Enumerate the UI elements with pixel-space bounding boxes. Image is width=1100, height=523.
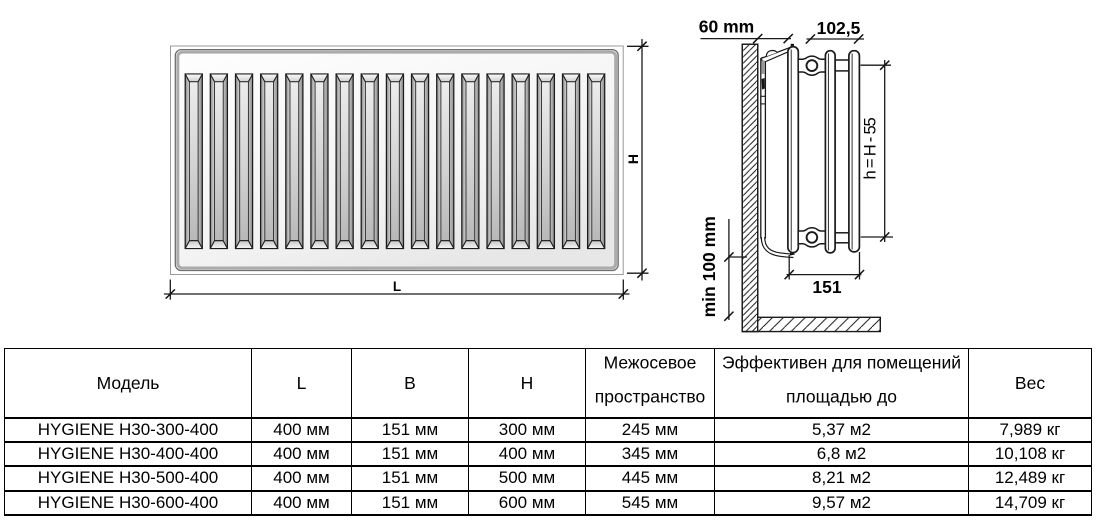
- svg-text:151: 151: [812, 277, 841, 297]
- svg-text:L: L: [393, 279, 401, 294]
- svg-text:min 100 mm: min 100 mm: [699, 216, 719, 317]
- svg-text:h = H - 55: h = H - 55: [862, 118, 880, 180]
- svg-text:102,5: 102,5: [817, 18, 861, 38]
- svg-text:H: H: [625, 154, 641, 164]
- svg-text:60 mm: 60 mm: [699, 17, 754, 37]
